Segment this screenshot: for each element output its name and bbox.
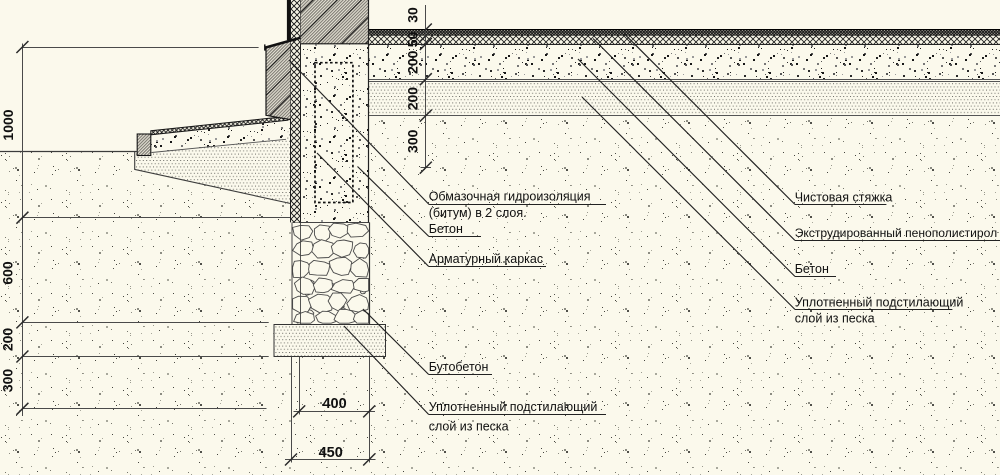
svg-text:Уплотненный подстилающий: Уплотненный подстилающий — [795, 296, 964, 310]
svg-text:(битум) в 2 слоя.: (битум) в 2 слоя. — [429, 206, 527, 220]
svg-text:300: 300 — [405, 129, 421, 153]
svg-text:Уплотненный подстилающий: Уплотненный подстилающий — [429, 400, 598, 414]
svg-text:50: 50 — [405, 32, 421, 48]
svg-text:200: 200 — [405, 50, 421, 74]
svg-text:слой из песка: слой из песка — [429, 419, 509, 433]
svg-text:600: 600 — [0, 261, 16, 285]
svg-text:слой из песка: слой из песка — [795, 312, 875, 326]
svg-text:Экструдированный пенополистиро: Экструдированный пенополистирол — [795, 226, 997, 240]
svg-text:Бетон: Бетон — [429, 222, 463, 236]
svg-text:Обмазочная гидроизоляция: Обмазочная гидроизоляция — [429, 190, 591, 204]
svg-text:300: 300 — [0, 369, 16, 393]
svg-text:200: 200 — [405, 87, 421, 111]
svg-text:400: 400 — [322, 396, 346, 412]
svg-text:450: 450 — [319, 445, 343, 461]
svg-text:Чистовая стяжка: Чистовая стяжка — [795, 190, 893, 204]
svg-text:Арматурный каркас: Арматурный каркас — [429, 252, 543, 266]
svg-text:200: 200 — [0, 328, 16, 352]
svg-text:Бутобетон: Бутобетон — [429, 360, 489, 374]
svg-text:1000: 1000 — [0, 109, 16, 140]
svg-text:Бетон: Бетон — [795, 262, 829, 276]
svg-text:30: 30 — [405, 7, 421, 23]
